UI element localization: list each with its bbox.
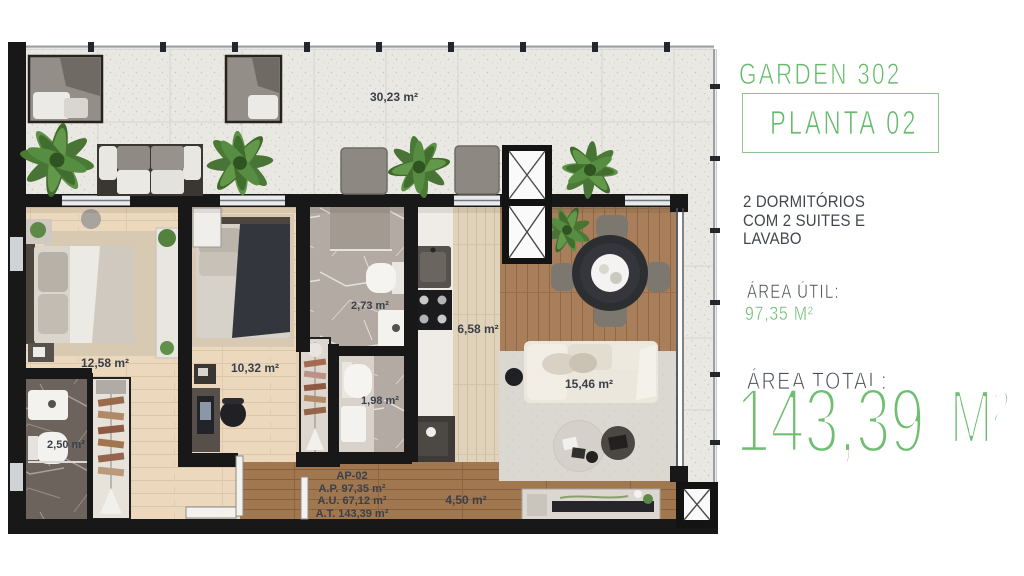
svg-text:10,32 m²: 10,32 m² [231, 361, 279, 375]
svg-text:2,73 m²: 2,73 m² [351, 300, 389, 312]
svg-text:15,46 m²: 15,46 m² [565, 377, 613, 391]
svg-text:12,58 m²: 12,58 m² [81, 356, 129, 370]
svg-text:A.U. 67,12 m²: A.U. 67,12 m² [317, 495, 386, 507]
svg-text:6,58 m²: 6,58 m² [457, 322, 498, 336]
svg-text:AP-02: AP-02 [336, 470, 367, 482]
svg-text:1,98 m²: 1,98 m² [361, 395, 399, 407]
svg-text:A.P. 97,35 m²: A.P. 97,35 m² [318, 483, 385, 495]
svg-text:A.T. 143,39 m²: A.T. 143,39 m² [316, 508, 389, 520]
svg-text:30,23 m²: 30,23 m² [370, 90, 418, 104]
svg-text:2,50 m²: 2,50 m² [47, 439, 85, 451]
svg-text:4,50 m²: 4,50 m² [445, 493, 486, 507]
